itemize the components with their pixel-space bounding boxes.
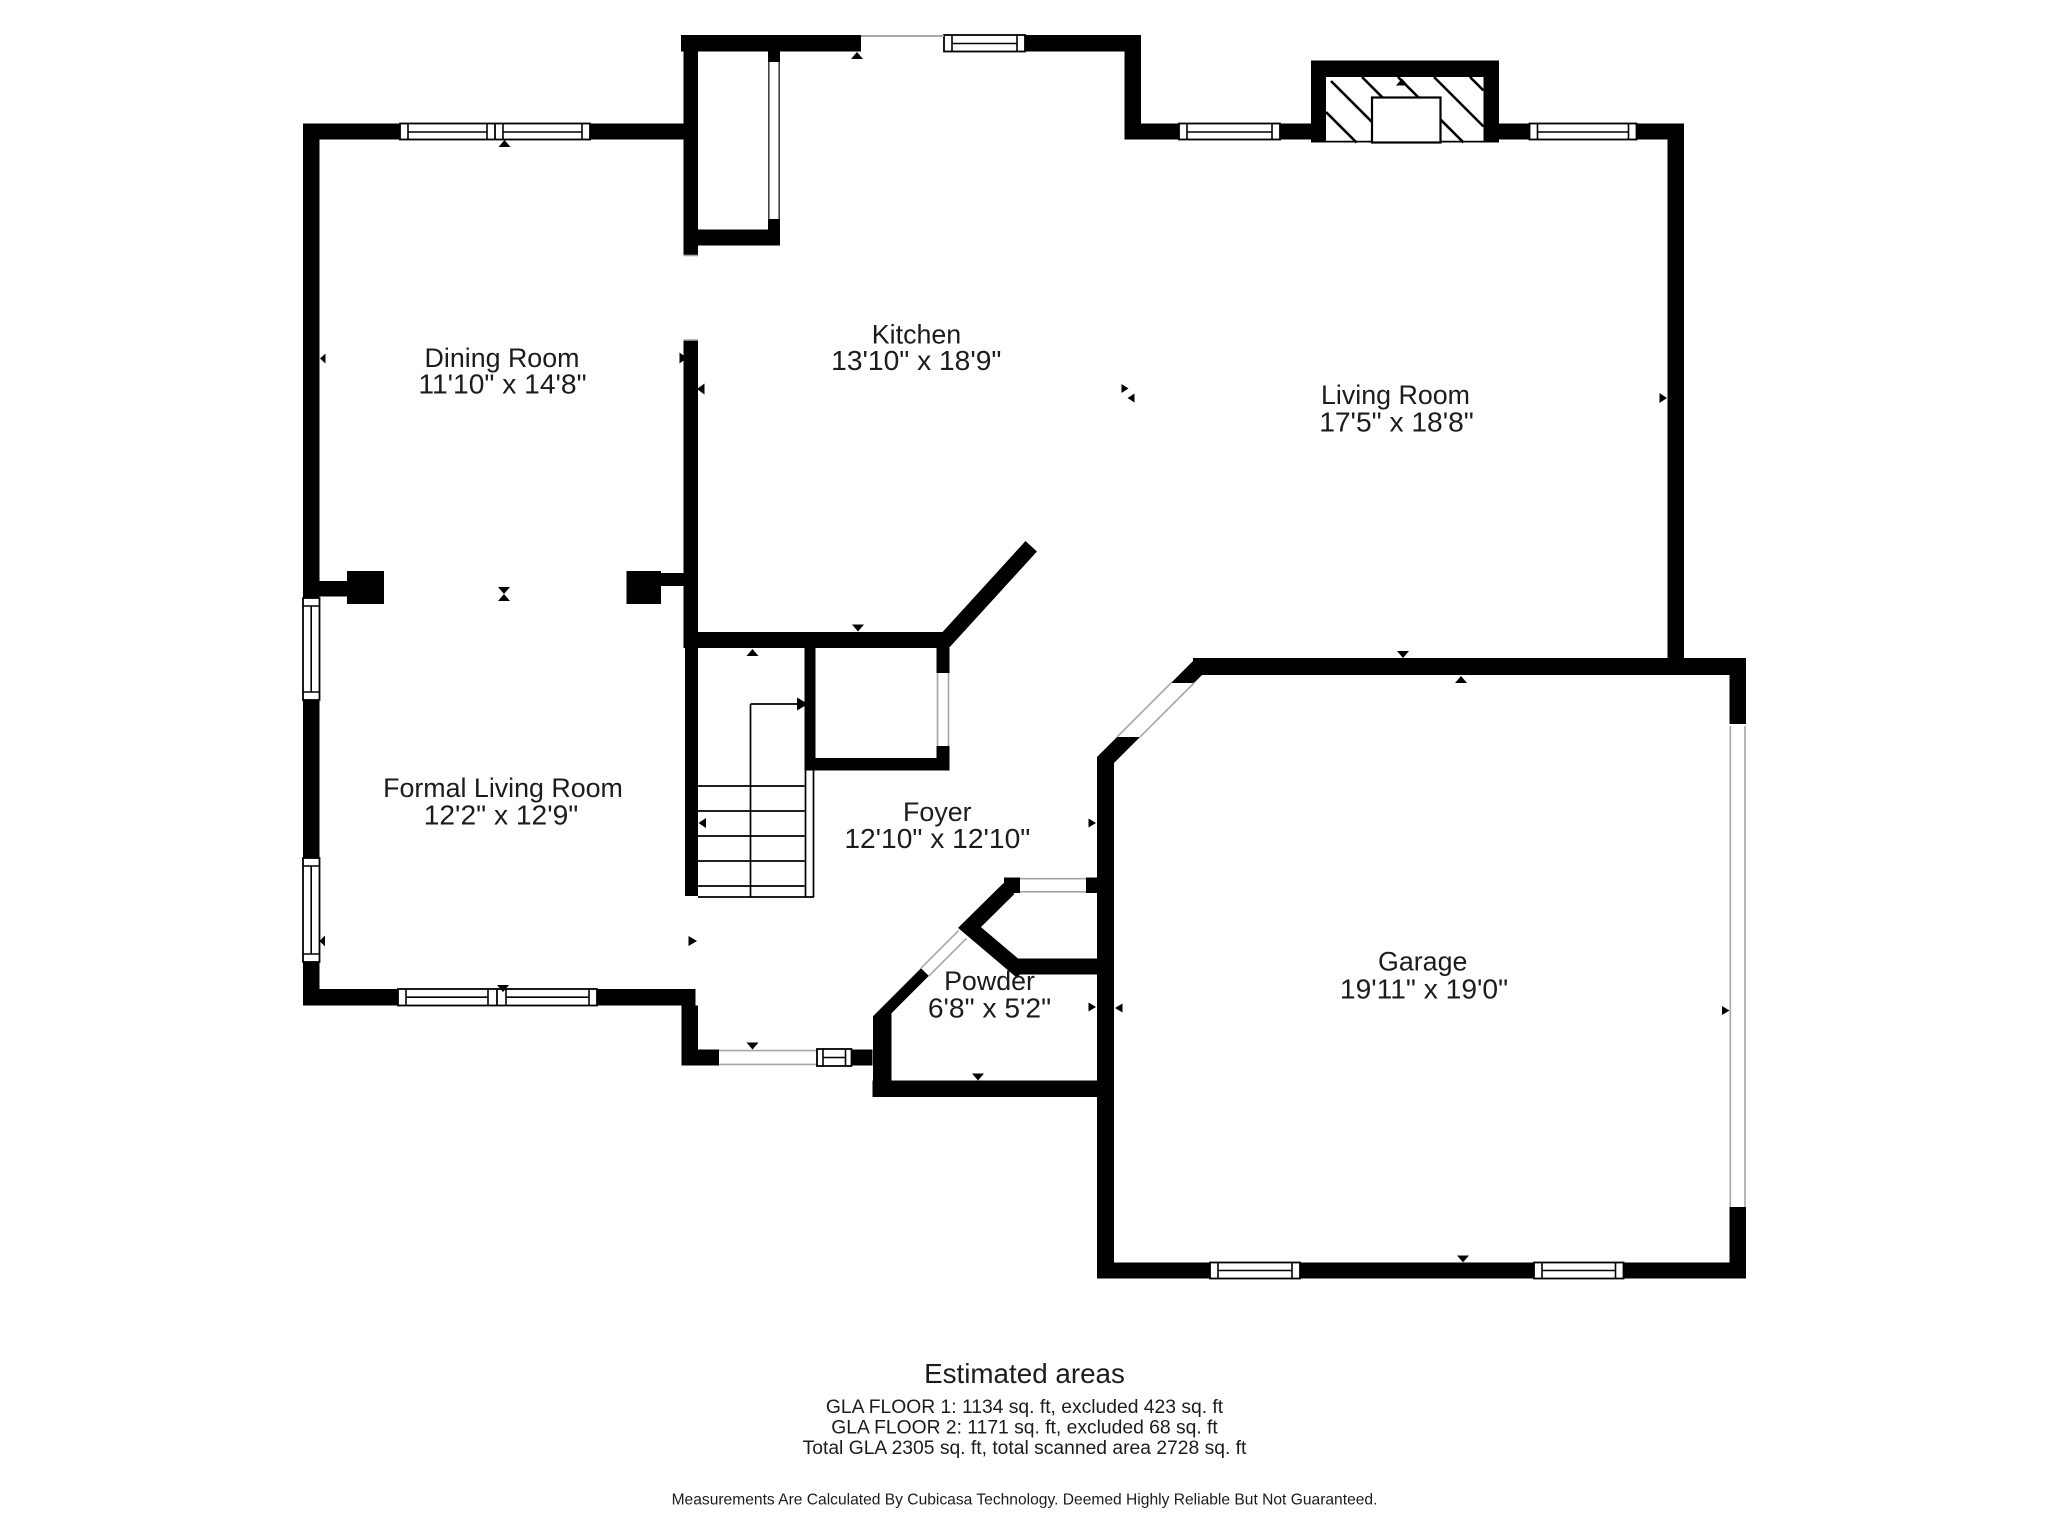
svg-text:13'10" x 18'9": 13'10" x 18'9" [831,344,1001,376]
svg-text:19'11" x 19'0": 19'11" x 19'0" [1340,973,1508,1005]
svg-text:17'5" x 18'8": 17'5" x 18'8" [1319,406,1474,438]
svg-text:12'2" x 12'9": 12'2" x 12'9" [424,799,579,831]
svg-text:12'10" x 12'10": 12'10" x 12'10" [844,822,1030,854]
svg-text:Estimated areas: Estimated areas [924,1358,1125,1389]
svg-text:Total GLA 2305 sq. ft, total s: Total GLA 2305 sq. ft, total scanned are… [803,1438,1247,1459]
svg-text:GLA FLOOR 1: 1134 sq. ft, excl: GLA FLOOR 1: 1134 sq. ft, excluded 423 s… [826,1397,1224,1418]
svg-text:11'10" x 14'8": 11'10" x 14'8" [418,368,586,400]
svg-text:Measurements Are Calculated By: Measurements Are Calculated By Cubicasa … [672,1492,1378,1509]
svg-text:6'8" x 5'2": 6'8" x 5'2" [928,992,1051,1024]
svg-text:GLA FLOOR 2: 1171 sq. ft, excl: GLA FLOOR 2: 1171 sq. ft, excluded 68 sq… [831,1418,1218,1439]
